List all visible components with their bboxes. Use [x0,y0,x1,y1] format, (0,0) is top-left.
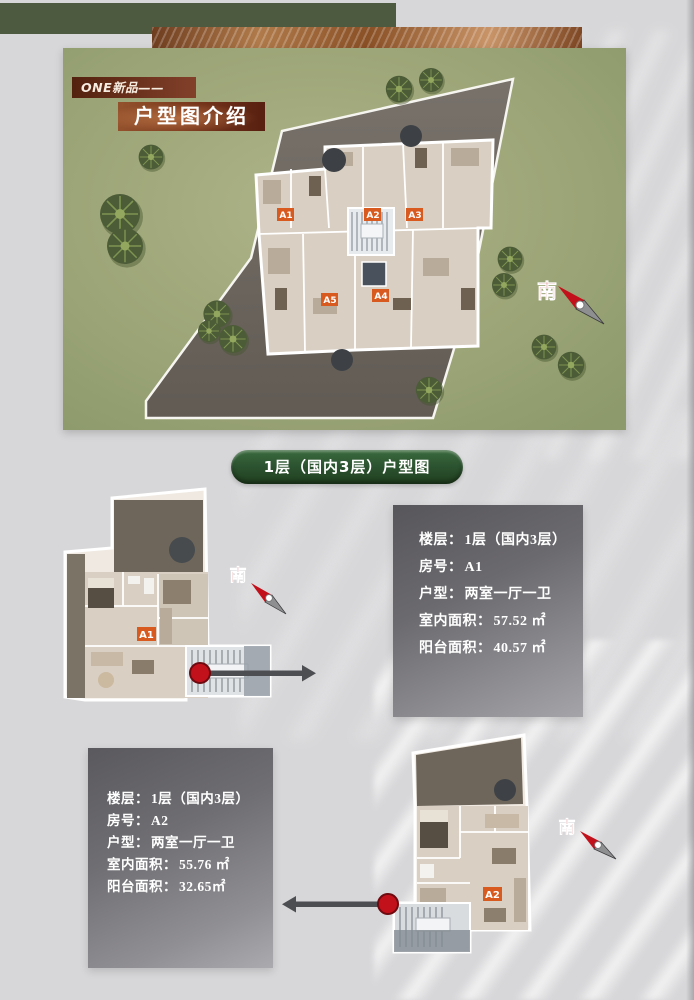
site-compass-label: 南 [537,279,557,303]
a2-floor-value: 1层（国内3层） [151,788,250,809]
a2-room-label: 房号： [107,811,149,832]
a2-area-label: 室内面积： [107,855,177,876]
a2-compass: 南 [559,817,617,859]
floor-plan-a2: A2 南 [270,728,640,990]
a2-balcony-row: 阳台面积： 32.65㎡ [88,876,273,898]
a2-unit-tag: A2 [485,890,500,901]
a2-room-value: A2 [151,810,169,831]
page-title: 户型图介绍 [118,102,265,131]
a1-floor-label: 楼层： [419,527,463,553]
a1-balcony-label: 阳台面积： [419,635,492,661]
a1-type-row: 户型： 两室一厅一卫 [393,581,583,608]
a1-type-label: 户型： [419,581,463,607]
site-tag-a1: A1 [279,211,292,221]
a2-area-value: 55.76 ㎡ [179,854,230,875]
a1-floor-value: 1层（国内3层） [465,528,567,554]
a1-compass: 南 [230,565,287,614]
a2-compass-label: 南 [559,817,576,838]
a1-room-value: A1 [465,555,483,581]
info-box-a1: 楼层： 1层（国内3层） 房号： A1 户型： 两室一厅一卫 室内面积： 57.… [393,505,583,717]
floor-plan-a1: A1 南 [58,486,348,721]
section-badge: 1层（国内3层）户型图 [231,450,463,484]
eyebrow-label: ONE新品—— [72,77,196,98]
a1-room-row: 房号： A1 [393,554,583,581]
info-box-a2: 楼层： 1层（国内3层） 房号： A2 户型： 两室一厅一卫 室内面积： 55.… [88,748,273,968]
a2-type-value: 两室一厅一卫 [151,832,235,853]
poster-page: A1 A2 A3 A5 A4 南 [0,0,694,1000]
a1-balcony-row: 阳台面积： 40.57 ㎡ [393,635,583,662]
a2-balcony-value: 32.65㎡ [179,876,226,897]
site-tag-a3: A3 [408,211,421,221]
a2-area-row: 室内面积： 55.76 ㎡ [88,854,273,876]
a1-area-value: 57.52 ㎡ [494,609,547,635]
a1-unit-tag: A1 [139,630,154,641]
a2-floor-row: 楼层： 1层（国内3层） [88,788,273,810]
a2-balcony-label: 阳台面积： [107,877,177,898]
a2-type-label: 户型： [107,833,149,854]
site-tag-a5: A5 [323,296,336,306]
a2-room-row: 房号： A2 [88,810,273,832]
a1-balcony-value: 40.57 ㎡ [494,636,547,662]
a2-type-row: 户型： 两室一厅一卫 [88,832,273,854]
a1-floor-row: 楼层： 1层（国内3层） [393,527,583,554]
right-edge-shade [686,0,694,1000]
a1-room-label: 房号： [419,554,463,580]
a1-type-value: 两室一厅一卫 [465,582,552,608]
a1-area-row: 室内面积： 57.52 ㎡ [393,608,583,635]
a1-compass-label: 南 [230,565,247,586]
site-tag-a2: A2 [366,211,379,221]
a1-area-label: 室内面积： [419,608,492,634]
site-tag-a4: A4 [374,292,387,302]
a2-floor-label: 楼层： [107,789,149,810]
a2-pointer-arrow [282,894,398,914]
